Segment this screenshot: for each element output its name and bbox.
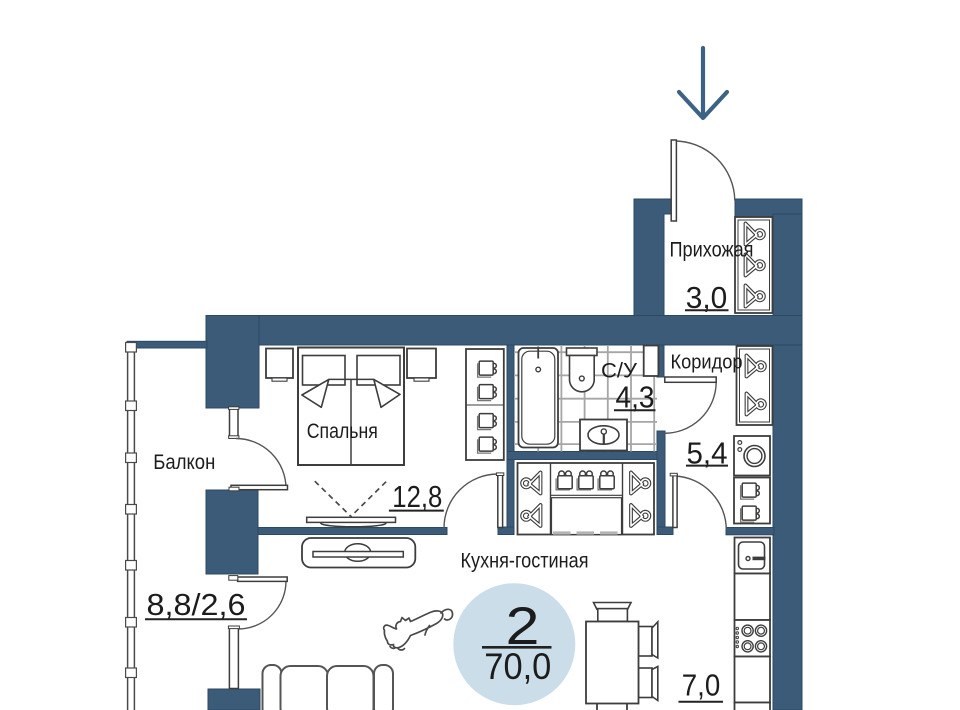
svg-text:7,0: 7,0 [682, 668, 721, 703]
svg-text:8,8/2,6: 8,8/2,6 [147, 587, 246, 622]
svg-text:12,8: 12,8 [392, 479, 442, 514]
svg-text:70,0: 70,0 [484, 646, 551, 687]
svg-text:Балкон: Балкон [153, 451, 215, 474]
svg-text:Кухня-гостиная: Кухня-гостиная [461, 550, 589, 573]
svg-text:4,3: 4,3 [616, 380, 655, 415]
svg-text:Прихожая: Прихожая [670, 239, 754, 262]
svg-text:Коридор: Коридор [671, 352, 743, 374]
svg-text:Спальня: Спальня [307, 420, 378, 443]
